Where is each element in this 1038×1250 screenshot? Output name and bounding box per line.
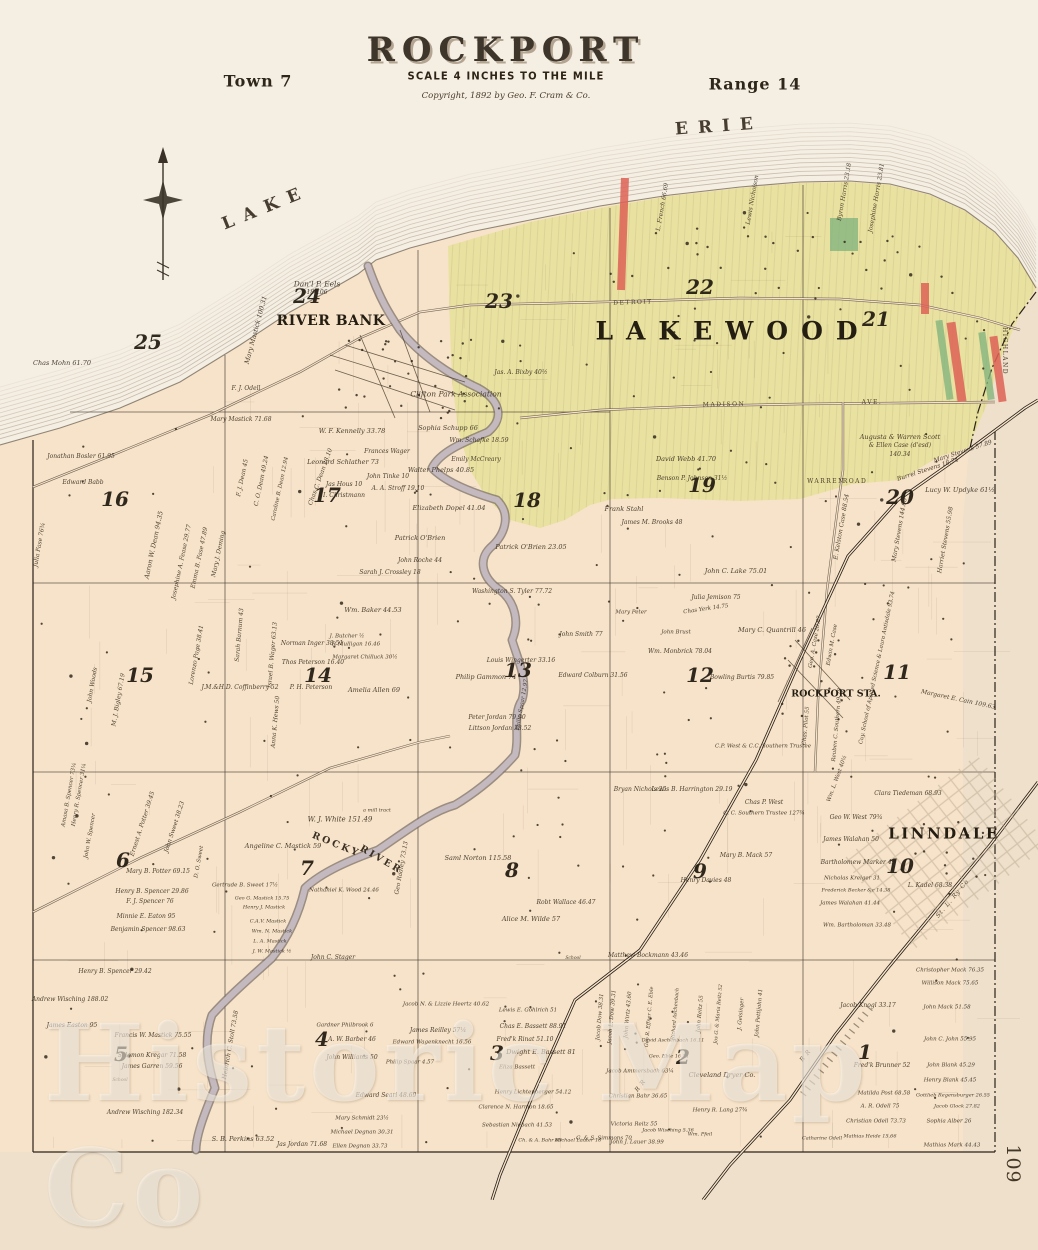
parcel-owner-label: James Easton 95 [47,1023,98,1029]
street-label: HIGHLAND [1001,327,1007,375]
parcel-owner-label: Henry J. Mastick [243,906,285,911]
parcel-owner-label: & Ellen Case (d'esd) [869,443,931,449]
section-number: 18 [513,490,541,510]
parcel-owner-label: Benjamin Spencer 98.63 [111,927,186,933]
parcel-owner-label: Dan'l P. Eels [294,280,341,288]
parcel-owner-label: S. B. Perkins 63.52 [212,1136,275,1143]
range-label: Range 14 [709,75,802,94]
parcel-owner-label: Alice M. Wilde 57 [502,916,560,923]
parcel-owner-label: Julia Jemison 75 [691,595,740,601]
section-number: 14 [304,665,332,685]
parcel-owner-label: 140.34 [890,452,911,458]
parcel-owner-label: W. F. Kennelly 33.78 [319,428,386,435]
town-label: Town 7 [224,72,293,91]
parcel-owner-label: Frederick Becker &c 14.38 [822,889,891,894]
parcel-owner-label: G. & S. Simmons 70 [576,1136,632,1142]
parcel-owner-label: Patrick O'Brien 23.05 [495,544,566,551]
parcel-owner-label: John Roche 44 [398,558,442,564]
parcel-owner-label: Wm. Bartholoman 33.48 [823,923,891,929]
parcel-owner-label: Mathias Mark 44.43 [924,1143,981,1149]
parcel-owner-label: David Aschenbach 16.11 [642,1039,705,1044]
parcel-owner-label: Catharine Odell [802,1137,842,1142]
parcel-owner-label: Mary C. Quantrill 46 [738,627,806,634]
parcel-owner-label: Bowling Burtis 79.85 [710,675,774,681]
parcel-owner-label: Chas Mohn 61.70 [33,360,91,367]
page-number: 109 [1002,1144,1024,1183]
parcel-owner-label: Matilda Post 68.58 [858,1091,911,1097]
parcel-owner-label: Saml Norton 115.58 [445,855,512,862]
parcel-owner-label: Christopher Mack 76.35 [916,968,984,974]
parcel-owner-label: J. W. Mastick ½ [253,950,292,955]
parcel-owner-label: Gertrude B. Sweet 17½ [212,883,278,889]
parcel-owner-label: Francis W. Mastick 75.55 [115,1033,192,1039]
parcel-owner-label: Gardner Philbrook 6 [316,1023,373,1029]
parcel-owner-label: Edward Searl 48.69 [356,1093,417,1099]
parcel-owner-label: Robt Wallace 46.47 [537,900,596,906]
parcel-owner-label: John Tinke 10 [367,474,409,480]
parcel-owner-label: Angeline C. Mastick 59 [245,843,322,850]
section-number: 7 [300,858,314,878]
street-label: ROAD [843,479,868,485]
map-title: ROCKPORT [367,30,646,70]
parcel-owner-label: Geo G. Mastick 15.75 [235,897,290,902]
parcel-owner-label: John Mack 51.58 [923,1005,970,1011]
parcel-owner-label: Margaret Chilluck 30½ [332,655,397,661]
scale-label: SCALE 4 INCHES TO THE MILE [407,71,604,83]
parcel-owner-label: Minnie E. Eaton 95 [117,914,176,920]
parcel-owner-label: A. R. Odell 75 [861,1104,900,1110]
parcel-owner-label: I. Christmann [323,493,365,499]
parcel-owner-label: Washington S. Tyler 77.72 [472,589,552,595]
parcel-owner-label: Chas E. Bassett 88.91 [500,1024,567,1030]
section-number: 3 [490,1043,504,1063]
parcel-owner-label: Elizabeth Dopel 41.04 [413,505,486,512]
parcel-owner-label: Jacob N. & Lizzie Heertz 40.62 [403,1002,489,1008]
parcel-owner-label: A. W. Barber 46 [328,1037,376,1043]
parcel-owner-label: Edward Colburn 31.56 [558,673,627,679]
parcel-owner-label: a mill tract [363,809,391,814]
section-number: 4 [315,1029,329,1049]
section-number: 21 [862,309,890,329]
parcel-owner-label: Fred'k Rinat 51.10 [497,1037,554,1043]
parcel-owner-label: Augusta & Warren Scott [860,434,941,441]
parcel-owner-label: John Smith 77 [559,632,602,638]
parcel-owner-label: School [112,1079,127,1084]
parcel-owner-label: Jas Hous 10 [326,482,362,488]
parcel-owner-label: James Walahan 41.44 [820,901,880,907]
parcel-owner-label: Lucy W. Updyke 61½ [925,487,994,494]
parcel-owner-label: Leonard Schlather 73 [307,459,379,466]
parcel-owner-label: Clara Tiedeman 68.93 [874,791,942,797]
parcel-owner-label: Andrew Wisching 188.02 [32,997,108,1003]
parcel-owner-label: L. Kadel 68.38 [908,883,952,889]
parcel-owner-label: Frank Stahl [605,506,644,513]
parcel-owner-label: Mary B. Potter 69.15 [126,869,190,875]
parcel-owner-label: Benson P. Johnson 31½ [657,476,728,482]
parcel-owner-label: James Garren 59.56 [122,1064,183,1070]
parcel-owner-label: Mary Schmidt 23½ [335,1116,389,1122]
parcel-owner-label: Mary B. Mack 57 [720,853,772,859]
parcel-owner-label: Walter Phelps 40.85 [408,467,474,474]
section-number: 11 [883,662,911,682]
parcel-owner-label: Eliza Bassett [499,1065,535,1071]
parcel-owner-label: Jas Jordan 71.68 [277,1142,327,1148]
parcel-owner-label: Emily McCreary [451,457,501,463]
parcel-owner-label: Christian Odell 73.73 [846,1119,906,1125]
copyright-label: Copyright, 1892 by Geo. F. Cram & Co. [422,91,591,101]
parcel-owner-label: Patrick O'Brien [395,535,446,542]
street-label: AVE. [862,400,883,406]
parcel-owner-label: Andrew Wisching 182.34 [107,1110,183,1116]
section-number: 23 [485,291,513,311]
parcel-owner-label: Geo. Eble 16.51 [649,1055,689,1060]
parcel-owner-label: Mary Mastick 71.68 [210,417,271,423]
parcel-owner-label: Henry Blank 45.45 [924,1078,977,1084]
parcel-owner-label: Gottlieb Regensburger 26.55 [916,1094,990,1099]
parcel-owner-label: James Walahan 50 [823,837,879,843]
parcel-owner-label: Chas P. West [745,800,783,806]
parcel-owner-label: Sebastian Niebach 41.53 [482,1123,552,1129]
parcel-owner-label: 184.06 [307,290,328,296]
parcel-owner-label: Philip Gammon 74 [456,674,517,681]
parcel-owner-label: Michael Degnan 30.31 [330,1130,393,1136]
parcel-owner-label: Edward Wagenknecht 16.56 [393,1040,472,1046]
section-number: 8 [505,860,519,880]
parcel-owner-label: L. A. Mastick [253,940,286,945]
parcel-owner-label: School [565,957,580,962]
parcel-owner-label: Jacob Wisching 5.36 [642,1129,694,1134]
parcel-owner-label: Nathaniel K. Wood 24.46 [309,888,379,894]
parcel-owner-label: Geo W. West 79¾ [830,815,883,821]
parcel-owner-label: David Webb 41.70 [656,456,716,463]
parcel-owner-label: Sarah J. Crossley 18 [359,570,420,576]
section-number: 1 [858,1042,872,1062]
parcel-owner-label: Matthew Bockmann 43.46 [608,953,688,959]
lakewood-label: LAKEWOOD [595,319,870,344]
parcel-owner-label: Lewis E. Gohlrich 51 [499,1008,557,1014]
parcel-owner-label: Cleveland Dryer Co. [689,1072,756,1079]
parcel-owner-label: Bartholomew Marker 49 [821,860,896,866]
parcel-owner-label: Henry Davies 48 [681,878,732,884]
parcel-owner-label: Wm. Schafke 18.59 [449,438,508,444]
parcel-owner-label: Willison Mack 75.65 [922,981,979,987]
parcel-owner-label: Henry B. Spencer 29.86 [115,889,188,895]
parcel-owner-label: A. A. Stroff 19.10 [372,486,425,492]
parcel-owner-label: Henry Lichtenberger 54.12 [495,1090,571,1096]
parcel-owner-label: Philip Spaar 4.57 [386,1060,434,1066]
parcel-owner-label: Jonathan Bosler 61.95 [47,454,115,460]
parcel-owner-label: Thos Peterson 16.40 [282,660,344,666]
parcel-owner-label: John Blank 45.29 [927,1063,975,1069]
parcel-owner-label: Mathias Heide 15.66 [843,1135,896,1140]
section-number: 16 [101,489,129,509]
parcel-owner-label: John C. Stager [311,955,355,961]
parcel-owner-label: Sophia Schupp 66 [418,425,478,432]
parcel-owner-label: Henry R. Lang 27¾ [693,1108,748,1114]
parcel-owner-label: Solomon Kregar 71.58 [118,1053,187,1059]
parcel-owner-label: Wm. Baker 44.53 [344,607,401,614]
parcel-owner-label: Jacob Glock 27.82 [934,1105,980,1110]
parcel-owner-label: Ellen Degnan 33.73 [332,1144,387,1150]
parcel-owner-label: James M. Brooks 48 [622,520,683,526]
parcel-owner-label: Clifton Park Association [410,390,501,398]
parcel-owner-label: P. Mulligan 16.46 [332,642,380,648]
parcel-owner-label: James Reilley 57¼ [410,1028,466,1034]
street-label: MADISON [703,402,746,409]
parcel-owner-label: Jas. A. Bixby 40½ [494,370,547,376]
parcel-owner-label: C.A.V. Mastick [250,920,286,925]
parcel-owner-label: Dwight E. Bassett 81 [506,1049,576,1056]
parcel-owner-label: Wm. N. Mastick [252,930,292,935]
river-bank-label: RIVER BANK [277,314,386,328]
section-number: 22 [686,277,714,297]
parcel-owner-label: Frances Wager [364,449,410,455]
parcel-owner-label: C.P. West & C.C. Southern Trustee [715,744,811,750]
parcel-owner-label: P. H. Peterson [290,685,332,691]
parcel-owner-label: John Williams 50 [326,1055,377,1061]
parcel-owner-label: W. J. White 151.49 [308,817,373,824]
map-sheet: ROCKPORT SCALE 4 INCHES TO THE MILE Copy… [0,0,1038,1200]
parcel-owner-label: Wm. Monbrick 78.04 [648,649,712,655]
street-label: WARREN [807,479,845,485]
parcel-owner-label: Jacob Ammersbach 63¼ [606,1069,674,1075]
parcel-owner-label: Clarence N. Harmon 18.65 [479,1105,554,1111]
parcel-owner-label: Fred'k Brunner 52 [854,1063,910,1069]
parcel-owner-label: F. J. Odell [232,386,261,392]
parcel-owner-label: John C. John 55.95 [924,1037,976,1043]
linndale-label: LINNDALE [888,827,1000,842]
parcel-owner-label: Mary Peter [615,610,646,616]
parcel-owner-label: J. Butcher ½ [330,634,365,640]
parcel-owner-label: Louis Wingerter 33.16 [487,658,555,664]
section-number: 15 [126,665,154,685]
section-number: 25 [134,332,162,352]
parcel-owner-label: F. J. Spencer 76 [126,899,173,905]
parcel-owner-label: Edward Babb [62,480,103,486]
parcel-owner-label: Jacob Knogl 33.17 [840,1003,896,1009]
section-number: 6 [116,850,130,870]
parcel-owner-label: John C. Lake 75.01 [705,568,767,575]
parcel-owner-label: Christian Bahr 36.65 [609,1094,668,1100]
parcel-owner-label: Nicholas Kreiger 31 [824,876,880,882]
parcel-owner-label: C. C. Southern Trustee 127¾ [723,811,805,817]
parcel-owner-label: Sophia Alber 26 [927,1119,972,1125]
parcel-owner-label: Bryan Nichols 25 [614,787,667,793]
parcel-owner-label: John Brust [661,630,691,636]
parcel-owner-label: Amelia Allen 69 [348,687,400,694]
parcel-owner-label: Henry B. Spencer 29.42 [78,969,151,975]
